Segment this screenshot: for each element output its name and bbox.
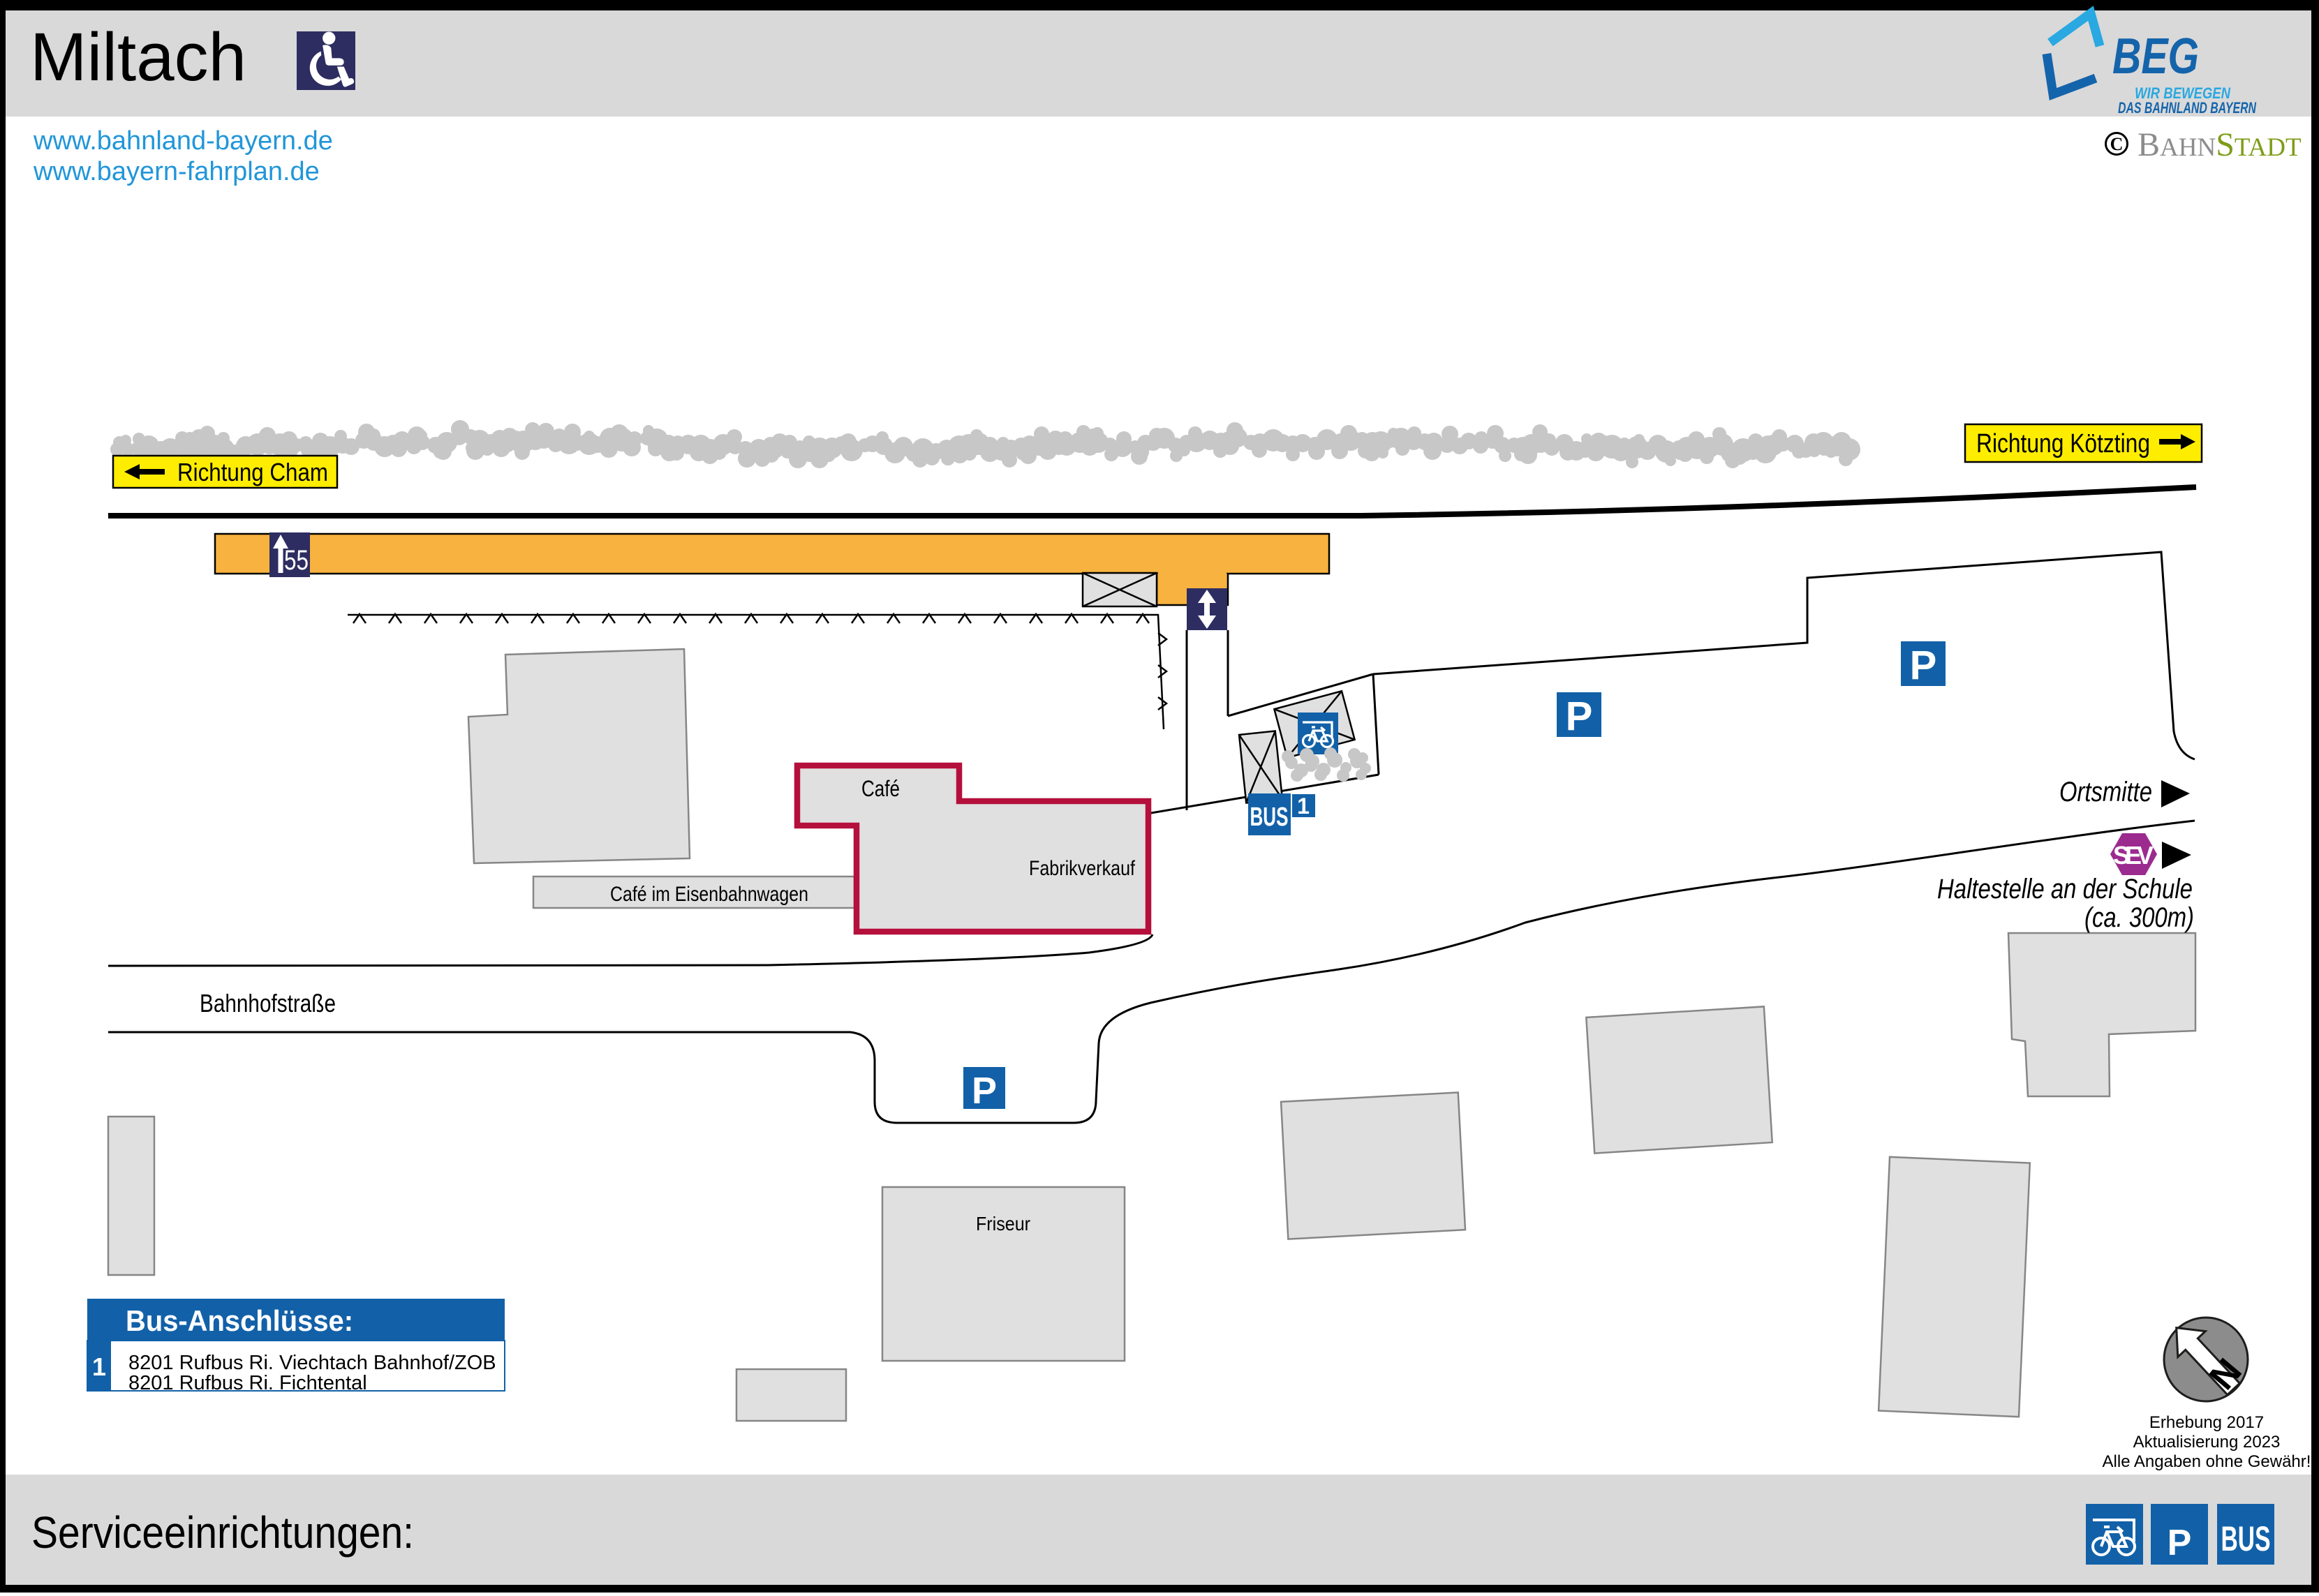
svg-text:Bahnhofstraße: Bahnhofstraße (200, 989, 336, 1017)
svg-text:1: 1 (92, 1352, 106, 1381)
svg-text:55: 55 (284, 545, 309, 576)
svg-text:Haltestelle an der Schule: Haltestelle an der Schule (1937, 874, 2193, 904)
svg-text:Miltach: Miltach (30, 19, 246, 95)
svg-text:P: P (1910, 643, 1937, 688)
svg-text:Erhebung 2017: Erhebung 2017 (2149, 1413, 2264, 1432)
svg-text:Café im Eisenbahnwagen: Café im Eisenbahnwagen (610, 883, 808, 906)
svg-text:www.bayern-fahrplan.de: www.bayern-fahrplan.de (33, 157, 320, 186)
svg-text:Aktualisierung 2023: Aktualisierung 2023 (2133, 1433, 2281, 1452)
svg-text:Ortsmitte: Ortsmitte (2059, 777, 2152, 807)
svg-text:SEV: SEV (2113, 841, 2154, 870)
svg-text:P: P (1566, 694, 1593, 739)
svg-text:BEG: BEG (2112, 29, 2199, 84)
svg-text:Richtung Kötzting: Richtung Kötzting (1976, 429, 2150, 458)
svg-text:BUS: BUS (2221, 1519, 2271, 1558)
svg-text:Friseur: Friseur (976, 1213, 1030, 1235)
svg-text:DAS BAHNLAND BAYERN: DAS BAHNLAND BAYERN (2118, 99, 2257, 117)
svg-text:BUS: BUS (1250, 803, 1289, 832)
svg-text:P: P (972, 1070, 997, 1112)
svg-text:Café: Café (861, 776, 900, 801)
svg-text:Fabrikverkauf: Fabrikverkauf (1029, 857, 1136, 880)
svg-text:www.bahnland-bayern.de: www.bahnland-bayern.de (33, 126, 333, 156)
svg-text:C: C (2110, 134, 2124, 154)
svg-text:Richtung Cham: Richtung Cham (177, 458, 328, 486)
svg-text:P: P (2168, 1523, 2192, 1563)
svg-text:8201 Rufbus Ri. Viechtach Bahn: 8201 Rufbus Ri. Viechtach Bahnhof/ZOB (128, 1352, 496, 1374)
svg-text:Serviceeinrichtungen:: Serviceeinrichtungen: (31, 1507, 414, 1558)
svg-text:(ca. 300m): (ca. 300m) (2084, 902, 2194, 933)
svg-text:Alle Angaben ohne Gewähr!: Alle Angaben ohne Gewähr! (2103, 1452, 2311, 1471)
svg-text:Bus-Anschlüsse:: Bus-Anschlüsse: (126, 1304, 353, 1337)
svg-text:8201 Rufbus Ri. Fichtental: 8201 Rufbus Ri. Fichtental (128, 1372, 367, 1394)
svg-text:1: 1 (1297, 793, 1310, 819)
